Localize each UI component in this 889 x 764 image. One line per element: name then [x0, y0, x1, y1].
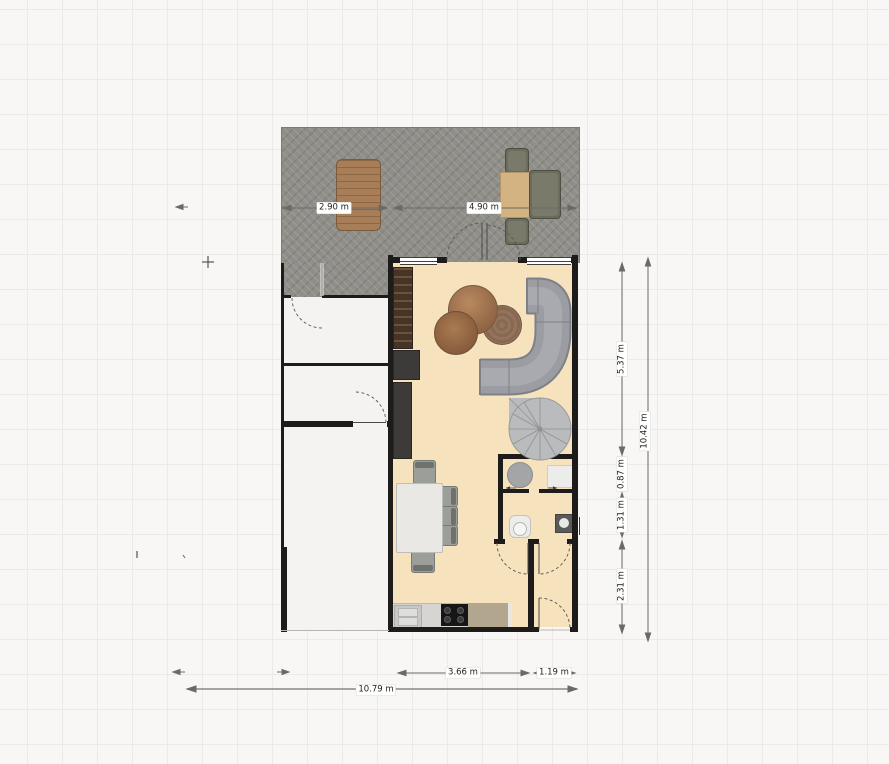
- entry-door-swing: [539, 598, 570, 629]
- floor-plan-canvas[interactable]: 2.90 m 4.90 m 5.37 m 0.87 m 1.31 m 2.31 …: [0, 0, 889, 764]
- stray-tick-marks: [137, 205, 289, 675]
- dim-label-bottom-kitchen: 3.66 m: [446, 667, 480, 678]
- dim-label-bottom-total: 10.79 m: [356, 684, 395, 695]
- spiral-staircase[interactable]: [509, 398, 571, 460]
- hall-door-swing: [539, 543, 570, 574]
- dim-label-right-upper: 5.37 m: [616, 342, 627, 376]
- plan-annotations: [0, 0, 889, 764]
- dimension-lines: [137, 205, 651, 693]
- french-door-swing-right: [487, 225, 520, 260]
- annex-door2-swing: [356, 392, 386, 422]
- bath-door-swing: [497, 543, 528, 574]
- dim-label-right-total: 10.42 m: [639, 411, 650, 450]
- french-door-swing-left: [447, 223, 482, 260]
- dim-label-right-bath: 1.31 m: [616, 498, 627, 532]
- dim-label-bottom-entry: 1.19 m: [537, 667, 571, 678]
- sectional-sofa[interactable]: [480, 278, 571, 395]
- pocket-door-arrows: [506, 486, 557, 490]
- dim-label-deck-right: 4.90 m: [467, 202, 501, 213]
- dim-label-deck-left: 2.90 m: [317, 202, 351, 213]
- dim-label-right-landing: 0.87 m: [616, 457, 627, 491]
- crosshair-marker: [202, 256, 214, 268]
- dim-label-right-lower: 2.31 m: [616, 569, 627, 603]
- annex-door1-swing: [292, 298, 322, 328]
